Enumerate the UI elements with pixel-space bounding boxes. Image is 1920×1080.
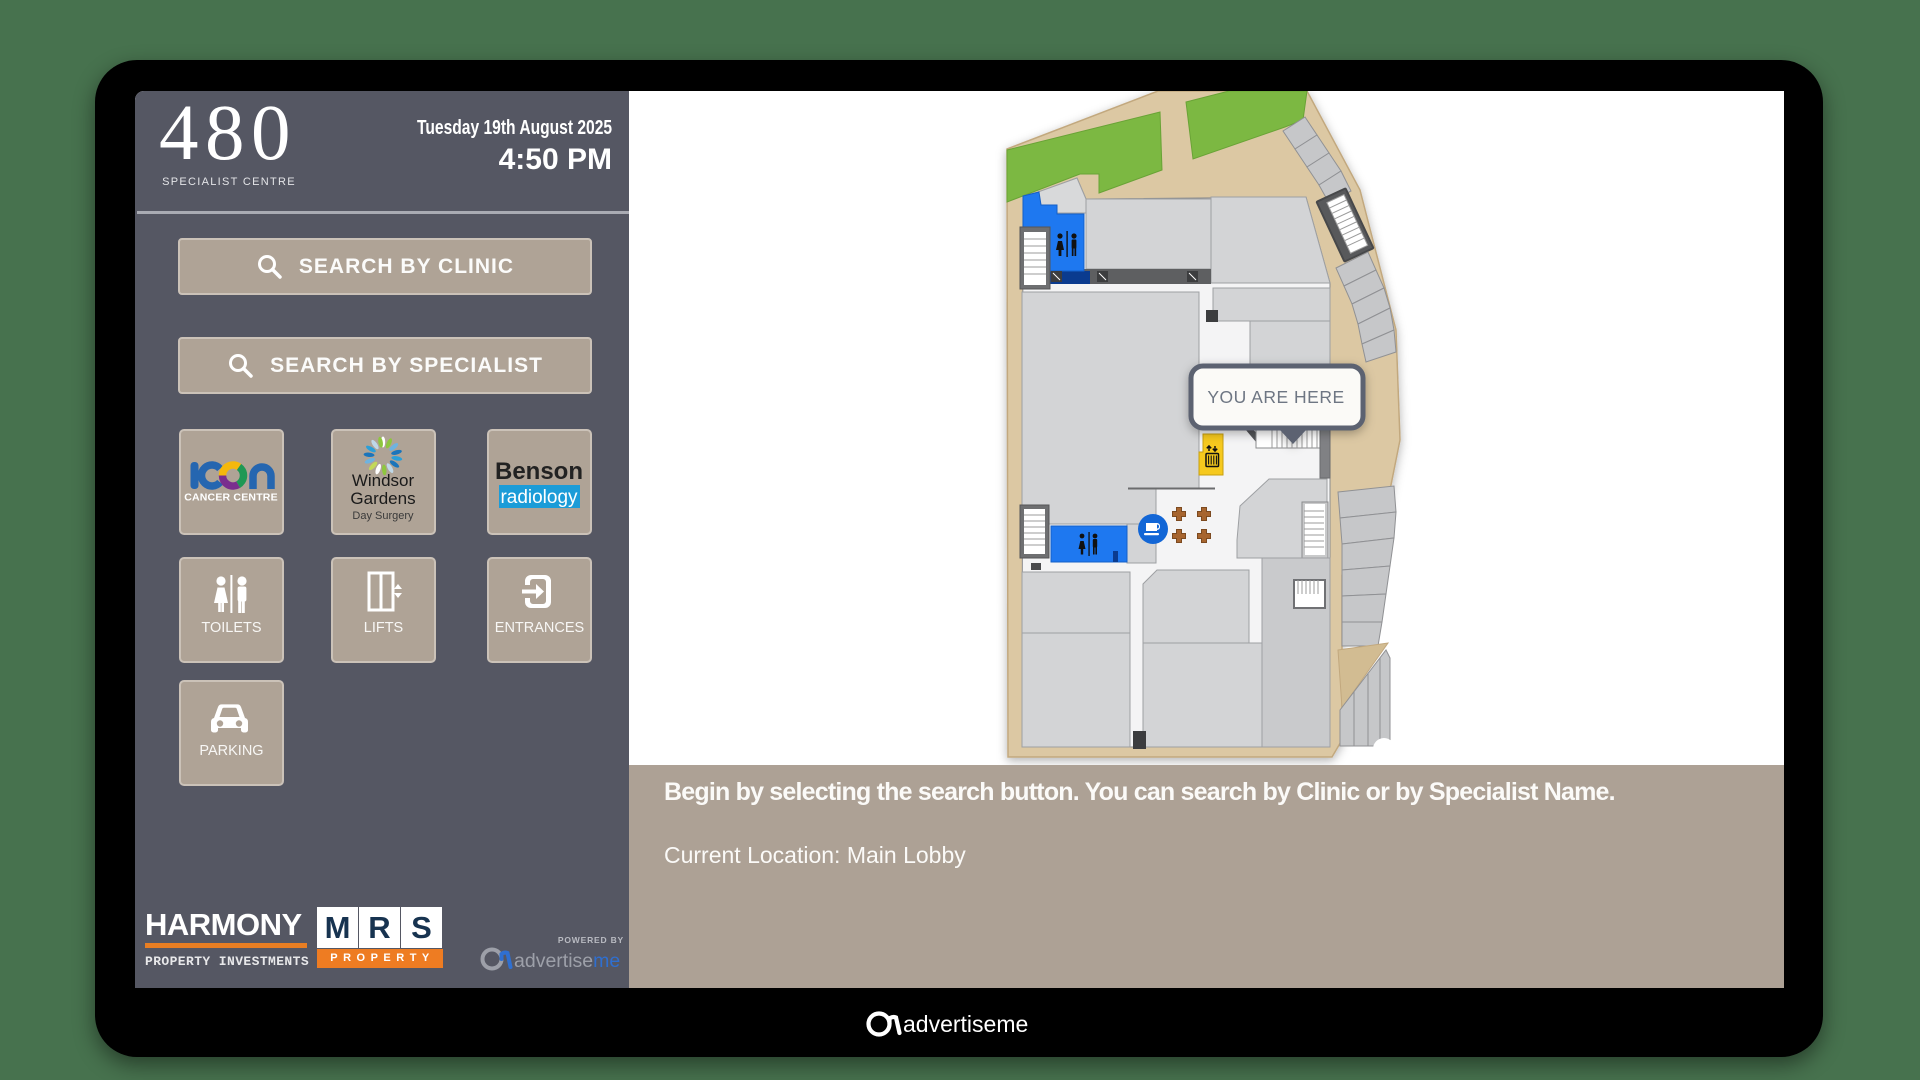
svg-text:Day Surgery: Day Surgery xyxy=(352,510,414,522)
svg-text:radiology: radiology xyxy=(500,487,578,508)
svg-text:advertiseme: advertiseme xyxy=(903,1011,1028,1037)
svg-text:Benson: Benson xyxy=(495,458,583,485)
svg-text:advertiseme: advertiseme xyxy=(514,950,620,972)
svg-text:Gardens: Gardens xyxy=(350,489,415,508)
svg-text:POWERED BY: POWERED BY xyxy=(558,935,624,945)
svg-text:Windsor: Windsor xyxy=(352,471,415,490)
svg-text:YOU ARE HERE: YOU ARE HERE xyxy=(1207,387,1344,407)
svg-text:CANCER CENTRE: CANCER CENTRE xyxy=(184,492,278,504)
